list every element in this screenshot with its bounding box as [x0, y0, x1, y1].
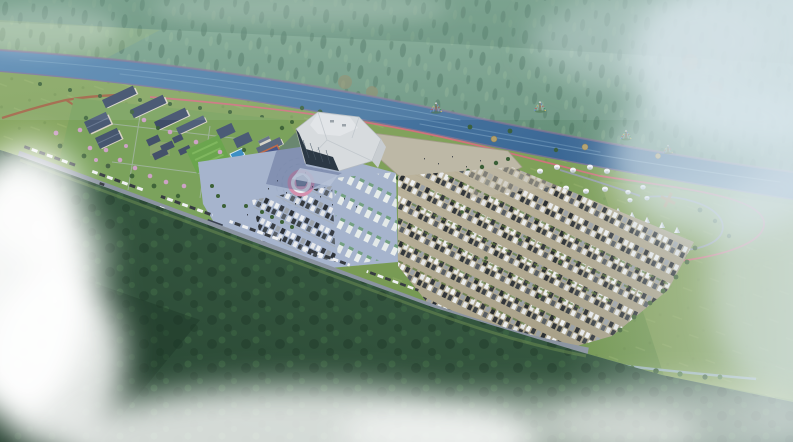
scene-canvas: [0, 0, 793, 442]
bus-parking-rows: [334, 172, 398, 266]
rooftop-unit-1: [330, 120, 334, 123]
aerial-rendering: [0, 0, 793, 442]
rooftop-unit-2: [342, 124, 346, 127]
